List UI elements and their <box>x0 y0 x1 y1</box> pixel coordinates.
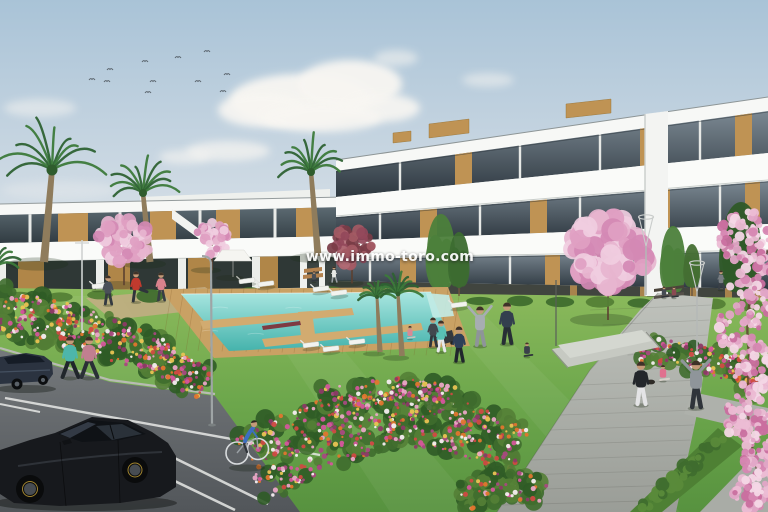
scene-canvas: www.immo-toro.com <box>0 0 768 512</box>
car-dark-sedan <box>0 353 56 393</box>
render-image: www.immo-toro.com <box>0 0 768 512</box>
watermark: www.immo-toro.com <box>306 249 474 265</box>
